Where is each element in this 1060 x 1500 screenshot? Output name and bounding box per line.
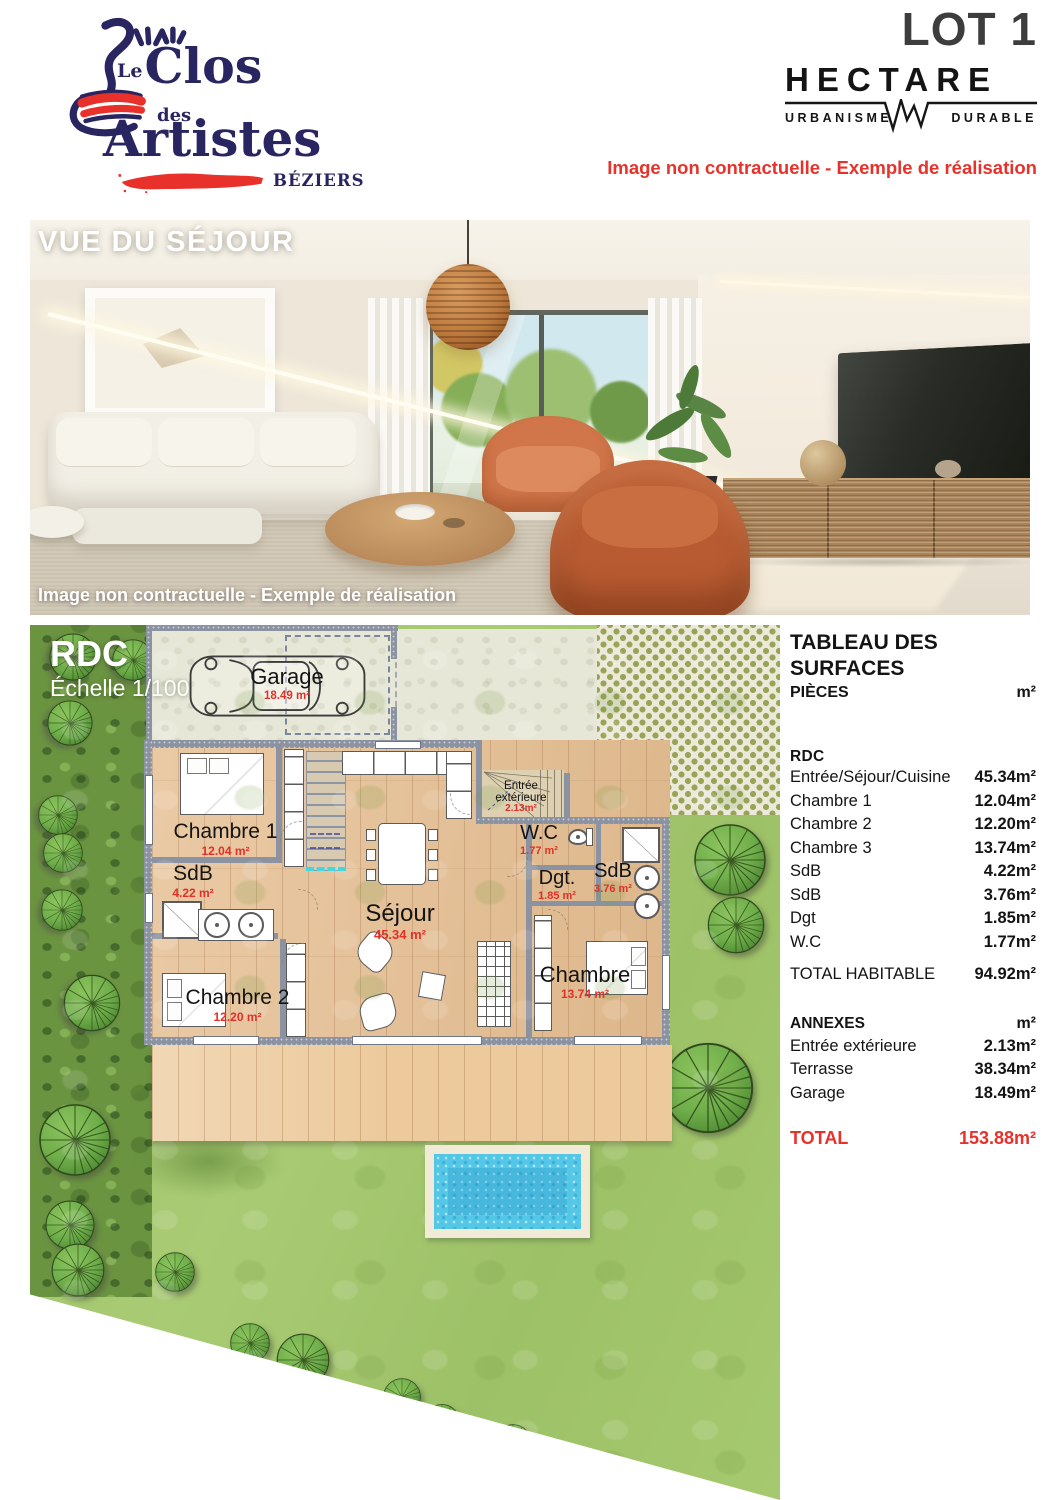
sofa-chaise bbox=[72, 508, 262, 544]
window bbox=[352, 1036, 482, 1045]
col-unit: m² bbox=[1016, 684, 1036, 702]
chair bbox=[428, 849, 438, 861]
section-annexes: ANNEXES m² bbox=[790, 1012, 1036, 1035]
brochure-page: LeClos des Artistes BÉZIERS LOT 1 HECTAR… bbox=[0, 0, 1060, 1500]
sink-icon bbox=[204, 912, 230, 938]
tv-screen bbox=[838, 343, 1030, 495]
wall bbox=[391, 629, 397, 659]
total-row: TOTAL 153.88m² bbox=[790, 1127, 1036, 1151]
plan-scale: Échelle 1/100 bbox=[50, 675, 189, 702]
sideboard bbox=[723, 478, 1030, 558]
logo-le: Le bbox=[117, 60, 142, 82]
wall bbox=[146, 625, 398, 631]
wall bbox=[152, 740, 482, 748]
wall bbox=[476, 817, 670, 824]
clos-des-artistes-logo: LeClos des Artistes BÉZIERS bbox=[55, 8, 405, 213]
table-row: Entrée/Séjour/Cuisine45.34m² bbox=[790, 766, 1036, 790]
coffee-table bbox=[325, 492, 515, 566]
pool bbox=[425, 1145, 590, 1238]
tree-icon bbox=[706, 895, 766, 955]
tree-icon bbox=[50, 1242, 106, 1298]
window bbox=[193, 1036, 259, 1045]
total-habitable-row: TOTAL HABITABLE 94.92m² bbox=[790, 963, 1036, 987]
window bbox=[574, 1036, 642, 1045]
bed-icon bbox=[180, 753, 264, 815]
stairs-marker bbox=[306, 867, 346, 871]
chair bbox=[366, 869, 376, 881]
hectare-logo: HECTARE URBANISME DURABLE bbox=[785, 61, 1037, 143]
sofa-cushion bbox=[56, 418, 152, 467]
pillow bbox=[187, 758, 207, 774]
room-label-dgt: Dgt. 1.85 m² bbox=[526, 868, 588, 903]
photo-caption: Image non contractuelle - Exemple de réa… bbox=[38, 585, 456, 606]
shower-icon bbox=[162, 901, 202, 939]
garden: Garage 18.49 m² Chambre 1 12.04 m² SdB 4… bbox=[30, 625, 780, 1500]
tree-icon bbox=[229, 1322, 271, 1364]
table-row: SdB4.22m² bbox=[790, 860, 1036, 884]
window bbox=[145, 775, 153, 845]
room-label-chambre1: Chambre 1 12.04 m² bbox=[163, 821, 288, 858]
table-row: Terrasse38.34m² bbox=[790, 1058, 1036, 1082]
sink-icon bbox=[238, 912, 264, 938]
hectare-durable: DURABLE bbox=[951, 111, 1037, 125]
room-label-chambre3: Chambre 13.74 m² bbox=[525, 963, 645, 1001]
room-label-sdb1: SdB 4.22 m² bbox=[138, 863, 248, 900]
surface-table: TABLEAU DES SURFACES PIÈCES m² RDC Entré… bbox=[790, 630, 1036, 1151]
armchair-seat bbox=[582, 486, 718, 548]
sofa-cushion bbox=[158, 418, 254, 467]
sofa bbox=[48, 412, 378, 514]
tree-icon bbox=[154, 1251, 196, 1293]
room-label-sejour: Séjour 45.34 m² bbox=[340, 901, 460, 942]
logo-brush-icon bbox=[113, 166, 272, 194]
low-table bbox=[418, 971, 446, 1001]
table-row: SdB3.76m² bbox=[790, 884, 1036, 908]
col-pieces: PIÈCES bbox=[790, 684, 849, 702]
table-row: Chambre 212.20m² bbox=[790, 813, 1036, 837]
wall bbox=[564, 773, 570, 821]
table-title: TABLEAU DES SURFACES bbox=[790, 630, 1036, 682]
table-row: W.C1.77m² bbox=[790, 931, 1036, 955]
table-row: Garage18.49m² bbox=[790, 1082, 1036, 1106]
tree-icon bbox=[46, 699, 94, 747]
tree-icon bbox=[692, 822, 768, 898]
living-room-photo: VUE DU SÉJOUR Image non contractuelle - … bbox=[30, 220, 1030, 615]
stairs bbox=[306, 751, 346, 871]
tv-cabinet bbox=[477, 941, 511, 1027]
sink-icon bbox=[634, 893, 660, 919]
pendant-cord bbox=[467, 220, 469, 266]
room-label-entree-ext: Entrée extérieure 2.13m² bbox=[482, 780, 560, 815]
chair bbox=[366, 829, 376, 841]
toilet-tank bbox=[586, 828, 593, 846]
room-label-garage: Garage 18.49 m² bbox=[227, 665, 347, 702]
plan-title: RDC bbox=[50, 633, 128, 675]
chair bbox=[428, 869, 438, 881]
tree-icon bbox=[275, 1332, 331, 1388]
pillow bbox=[209, 758, 229, 774]
sofa-cushion bbox=[260, 418, 356, 467]
chair bbox=[428, 829, 438, 841]
wall bbox=[662, 817, 670, 1045]
terrace bbox=[152, 1045, 672, 1141]
chair bbox=[366, 849, 376, 861]
tree-icon bbox=[62, 973, 122, 1033]
bowl-decor bbox=[395, 504, 435, 520]
stairs-dashed-line bbox=[310, 833, 340, 835]
wall-art-frame bbox=[85, 288, 275, 418]
room-label-sdb2: SdB 3.76 m² bbox=[584, 861, 642, 896]
logo-city: BÉZIERS bbox=[273, 171, 365, 190]
rattan-ball bbox=[800, 440, 846, 486]
table-row: Dgt1.85m² bbox=[790, 907, 1036, 931]
page-header: LeClos des Artistes BÉZIERS LOT 1 HECTAR… bbox=[0, 0, 1060, 218]
tree-icon bbox=[37, 1102, 113, 1178]
header-disclaimer: Image non contractuelle - Exemple de réa… bbox=[607, 157, 1037, 179]
tree-icon bbox=[382, 1377, 422, 1417]
table-row: Chambre 112.04m² bbox=[790, 790, 1036, 814]
pendant-lamp bbox=[426, 264, 510, 350]
photo-title: VUE DU SÉJOUR bbox=[38, 226, 294, 259]
logo-clos: Clos bbox=[144, 42, 262, 91]
stone-decor bbox=[935, 460, 961, 478]
lot-title: LOT 1 bbox=[902, 4, 1037, 55]
section-rdc: RDC bbox=[790, 748, 1036, 766]
hectare-name: HECTARE bbox=[785, 61, 1045, 99]
floor-plan: Garage 18.49 m² Chambre 1 12.04 m² SdB 4… bbox=[30, 625, 780, 1500]
table-row: Entrée extérieure2.13m² bbox=[790, 1035, 1036, 1059]
logo-artistes: Artistes bbox=[103, 114, 321, 164]
toilet-icon bbox=[568, 829, 588, 845]
driveway bbox=[395, 629, 597, 740]
stairs-dashed-line bbox=[310, 847, 340, 849]
hectare-urbanisme: URBANISME bbox=[785, 111, 892, 125]
dish-decor bbox=[443, 518, 465, 528]
dining-table bbox=[378, 823, 426, 885]
room-label-chambre2: Chambre 2 12.20 m² bbox=[175, 987, 300, 1024]
room-label-wc: W.C 1.77 m² bbox=[510, 823, 568, 858]
tree-icon bbox=[42, 832, 84, 874]
tree-icon bbox=[40, 888, 84, 932]
tree-icon bbox=[493, 1423, 533, 1463]
tree-icon bbox=[423, 1403, 461, 1441]
table-row: Chambre 313.74m² bbox=[790, 837, 1036, 861]
tree-icon bbox=[660, 1040, 756, 1136]
window bbox=[375, 741, 421, 749]
window bbox=[662, 955, 670, 1010]
tree-icon bbox=[37, 794, 79, 836]
wall bbox=[391, 707, 397, 740]
shower-icon bbox=[622, 827, 660, 863]
